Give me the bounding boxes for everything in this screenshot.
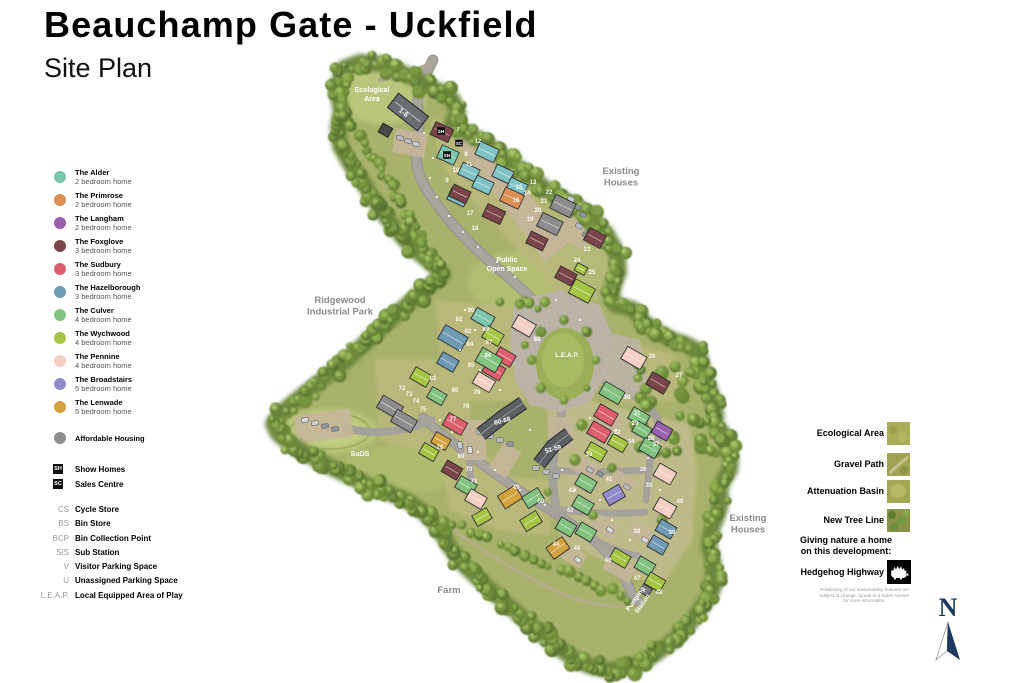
svg-text:Houses: Houses [731, 525, 765, 536]
svg-text:35: 35 [646, 483, 653, 489]
svg-text:29: 29 [632, 421, 639, 427]
svg-text:15: 15 [516, 185, 523, 191]
svg-text:76: 76 [437, 445, 444, 451]
svg-text:34: 34 [628, 439, 635, 445]
svg-text:26: 26 [649, 354, 656, 360]
svg-text:84: 84 [467, 342, 474, 348]
svg-text:13: 13 [530, 180, 537, 186]
svg-text:44: 44 [553, 542, 560, 548]
svg-text:83: 83 [465, 329, 472, 335]
svg-text:71: 71 [471, 479, 478, 485]
svg-text:31: 31 [634, 411, 641, 417]
svg-text:SH: SH [444, 153, 451, 159]
svg-text:23: 23 [584, 247, 591, 253]
svg-text:32: 32 [614, 430, 621, 436]
svg-text:12: 12 [475, 139, 482, 145]
svg-text:25: 25 [589, 270, 596, 276]
svg-text:81: 81 [430, 376, 437, 382]
svg-text:17: 17 [467, 211, 474, 217]
svg-text:39: 39 [669, 530, 676, 536]
svg-text:SuDS: SuDS [351, 451, 370, 458]
svg-text:Ecological: Ecological [354, 87, 389, 94]
svg-text:78: 78 [463, 404, 470, 410]
svg-text:88: 88 [534, 337, 541, 343]
svg-text:Industrial Park: Industrial Park [307, 307, 374, 318]
svg-text:36: 36 [640, 467, 647, 473]
svg-text:90: 90 [468, 308, 475, 314]
svg-text:79: 79 [474, 390, 481, 396]
svg-text:10: 10 [453, 168, 460, 174]
svg-text:87: 87 [486, 340, 493, 346]
svg-text:85: 85 [468, 363, 475, 369]
svg-text:Open Space: Open Space [487, 266, 528, 273]
svg-text:86: 86 [485, 353, 492, 359]
svg-text:27: 27 [676, 373, 683, 379]
svg-text:80: 80 [452, 388, 459, 394]
svg-text:18: 18 [472, 226, 479, 232]
svg-text:70: 70 [466, 467, 473, 473]
svg-text:43: 43 [567, 508, 574, 514]
svg-text:SH: SH [438, 129, 445, 135]
svg-text:74: 74 [413, 399, 420, 405]
svg-text:30: 30 [624, 395, 631, 401]
svg-text:49: 49 [513, 485, 520, 491]
svg-text:Existing: Existing [603, 166, 640, 177]
svg-text:37: 37 [653, 442, 660, 448]
svg-text:11: 11 [466, 162, 473, 168]
svg-text:72: 72 [399, 386, 406, 392]
svg-text:47: 47 [634, 576, 641, 582]
svg-text:46: 46 [605, 558, 612, 564]
svg-text:24: 24 [574, 258, 581, 264]
svg-text:Houses: Houses [604, 178, 638, 189]
svg-text:Farm: Farm [437, 585, 460, 596]
svg-text:40: 40 [677, 499, 684, 505]
svg-text:45: 45 [574, 546, 581, 552]
svg-text:L.E.A.P.: L.E.A.P. [555, 352, 579, 359]
svg-text:21: 21 [541, 199, 548, 205]
svg-text:38: 38 [634, 529, 641, 535]
svg-text:73: 73 [406, 392, 413, 398]
svg-text:Public: Public [496, 257, 517, 264]
svg-text:14: 14 [524, 191, 531, 197]
svg-text:75: 75 [420, 407, 427, 413]
svg-text:41: 41 [606, 477, 613, 483]
svg-text:20: 20 [535, 208, 542, 214]
svg-text:33: 33 [586, 452, 593, 458]
svg-text:77: 77 [450, 417, 457, 423]
svg-text:50: 50 [538, 499, 545, 505]
svg-text:19: 19 [527, 217, 534, 223]
svg-text:82: 82 [456, 317, 463, 323]
svg-text:22: 22 [546, 190, 553, 196]
svg-text:69: 69 [458, 454, 465, 460]
svg-text:SC: SC [456, 141, 463, 146]
svg-text:Ridgewood: Ridgewood [314, 295, 365, 306]
svg-text:48: 48 [656, 590, 663, 596]
svg-text:Area: Area [364, 96, 380, 103]
svg-text:16: 16 [513, 198, 520, 204]
svg-text:89: 89 [483, 327, 490, 333]
